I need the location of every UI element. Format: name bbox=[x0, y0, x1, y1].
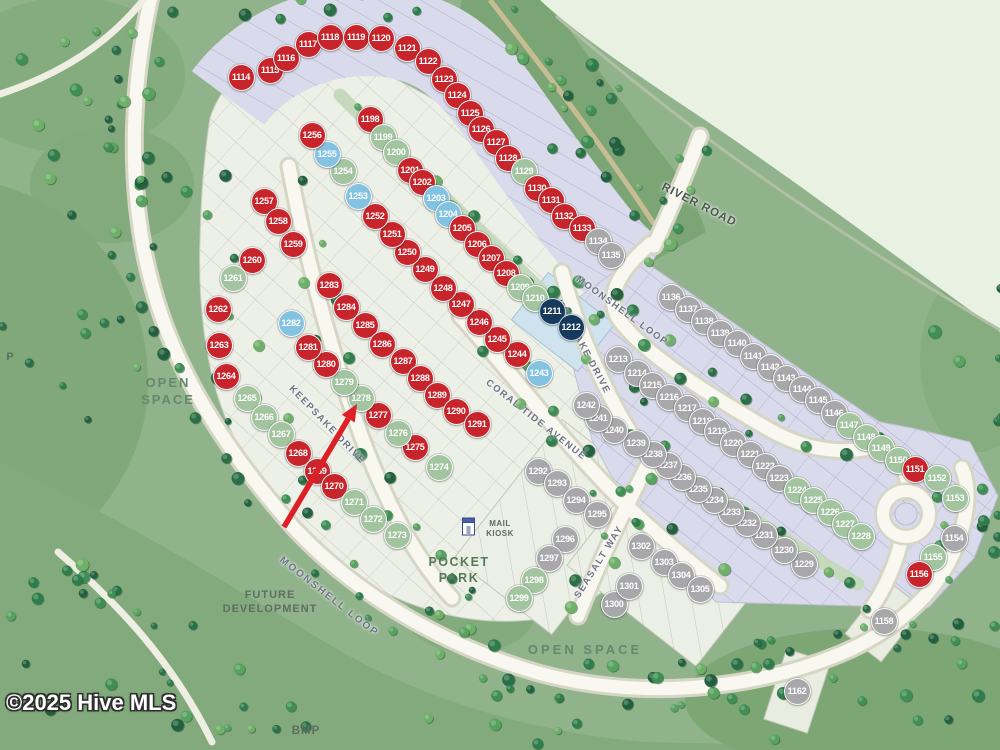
watermark: ©2025 Hive MLS bbox=[6, 690, 176, 716]
lot-marker-1156[interactable]: 1156 bbox=[906, 561, 933, 588]
map-base-layer bbox=[0, 0, 1000, 750]
lot-marker-1282[interactable]: 1282 bbox=[278, 310, 305, 337]
lot-marker-1272[interactable]: 1272 bbox=[360, 506, 387, 533]
lot-marker-1153[interactable]: 1153 bbox=[942, 485, 969, 512]
lot-marker-1114[interactable]: 1114 bbox=[228, 64, 255, 91]
mail-kiosk-icon bbox=[461, 517, 476, 541]
lot-marker-1228[interactable]: 1228 bbox=[848, 523, 875, 550]
lot-marker-1243[interactable]: 1243 bbox=[526, 360, 553, 387]
lot-marker-1154[interactable]: 1154 bbox=[941, 525, 968, 552]
lot-marker-1118[interactable]: 1118 bbox=[317, 24, 344, 51]
lot-marker-1273[interactable]: 1273 bbox=[384, 522, 411, 549]
lot-marker-1281[interactable]: 1281 bbox=[295, 334, 322, 361]
lot-marker-1212[interactable]: 1212 bbox=[558, 314, 585, 341]
lot-marker-1119[interactable]: 1119 bbox=[343, 24, 370, 51]
lot-marker-1283[interactable]: 1283 bbox=[316, 272, 343, 299]
lot-marker-1162[interactable]: 1162 bbox=[784, 678, 811, 705]
lot-marker-1259[interactable]: 1259 bbox=[280, 231, 307, 258]
lot-marker-1274[interactable]: 1274 bbox=[426, 454, 453, 481]
lot-marker-1295[interactable]: 1295 bbox=[584, 501, 611, 528]
lot-marker-1263[interactable]: 1263 bbox=[206, 332, 233, 359]
lot-marker-1120[interactable]: 1120 bbox=[368, 25, 395, 52]
site-map: RIVER ROADMOONSHELL LOOPMOONSHELL LOOPKE… bbox=[0, 0, 1000, 750]
lot-marker-1301[interactable]: 1301 bbox=[616, 573, 643, 600]
lot-marker-1158[interactable]: 1158 bbox=[871, 608, 898, 635]
lot-marker-1264[interactable]: 1264 bbox=[213, 363, 240, 390]
lot-marker-1256[interactable]: 1256 bbox=[299, 122, 326, 149]
lot-marker-1261[interactable]: 1261 bbox=[220, 265, 247, 292]
lot-marker-1291[interactable]: 1291 bbox=[464, 411, 491, 438]
lot-marker-1305[interactable]: 1305 bbox=[687, 576, 714, 603]
culdesac-island bbox=[895, 503, 917, 525]
lot-marker-1253[interactable]: 1253 bbox=[345, 183, 372, 210]
lot-marker-1302[interactable]: 1302 bbox=[628, 533, 655, 560]
lot-marker-1299[interactable]: 1299 bbox=[506, 585, 533, 612]
lot-marker-1258[interactable]: 1258 bbox=[265, 208, 292, 235]
lot-marker-1262[interactable]: 1262 bbox=[205, 296, 232, 323]
lot-marker-1135[interactable]: 1135 bbox=[598, 242, 625, 269]
lot-marker-1242[interactable]: 1242 bbox=[573, 392, 600, 419]
